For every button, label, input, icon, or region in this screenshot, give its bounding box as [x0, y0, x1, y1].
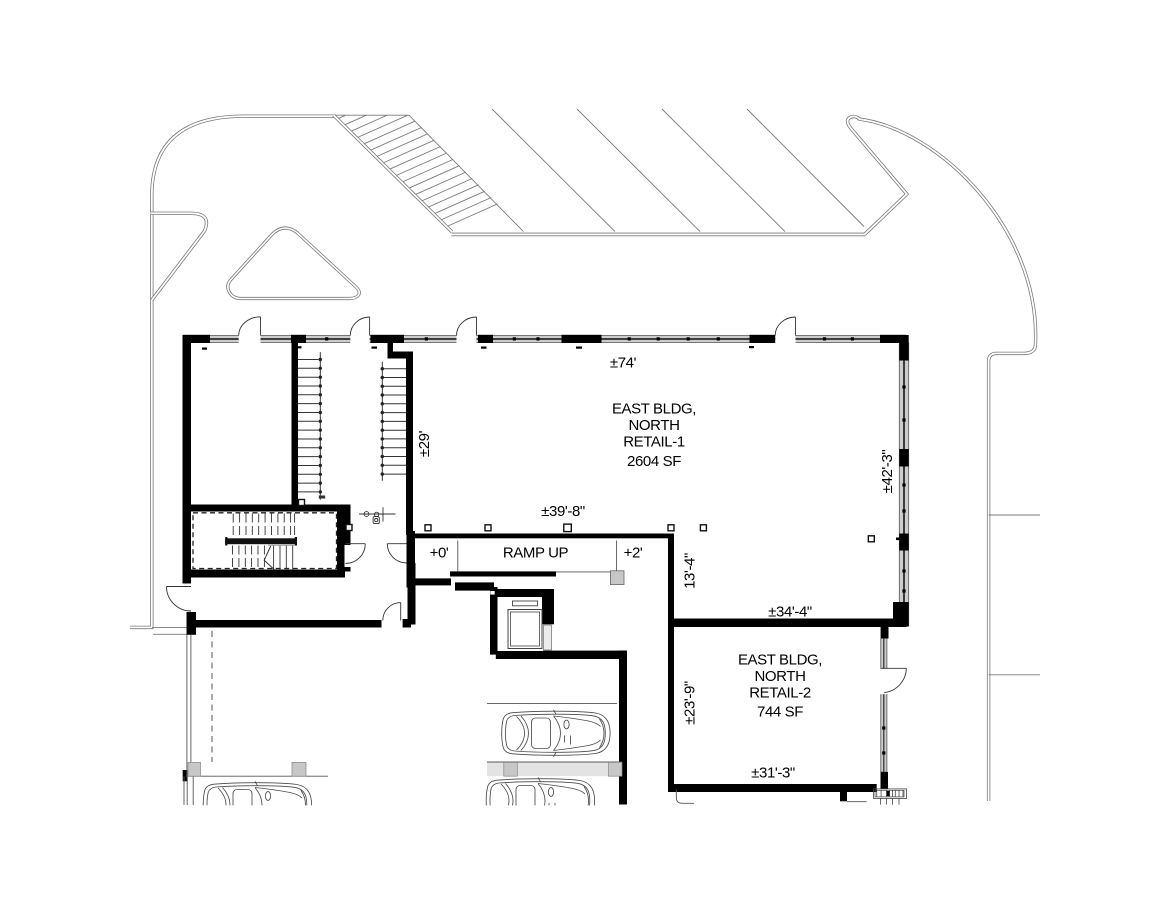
svg-text:EAST BLDG,: EAST BLDG,: [612, 401, 696, 418]
svg-text:EAST BLDG,: EAST BLDG,: [738, 652, 822, 669]
svg-text:±39'-8": ±39'-8": [541, 503, 585, 520]
svg-text:2604 SF: 2604 SF: [627, 453, 681, 470]
svg-text:744 SF: 744 SF: [757, 704, 803, 721]
svg-text:±74': ±74': [610, 355, 637, 372]
svg-text:RETAIL-2: RETAIL-2: [749, 685, 811, 702]
svg-text:NORTH: NORTH: [754, 668, 805, 685]
svg-text:±31'-3": ±31'-3": [751, 765, 795, 782]
svg-text:±23'-9": ±23'-9": [682, 681, 699, 725]
svg-text:+2': +2': [624, 544, 643, 561]
svg-text:13'-4": 13'-4": [682, 553, 699, 589]
svg-text:NORTH: NORTH: [628, 417, 679, 434]
svg-text:RETAIL-1: RETAIL-1: [623, 434, 685, 451]
svg-text:±42'-3": ±42'-3": [879, 450, 896, 494]
svg-text:±29': ±29': [416, 430, 433, 457]
svg-text:RAMP UP: RAMP UP: [503, 544, 569, 561]
svg-text:±34'-4": ±34'-4": [768, 604, 812, 621]
svg-text:+0': +0': [430, 544, 449, 561]
